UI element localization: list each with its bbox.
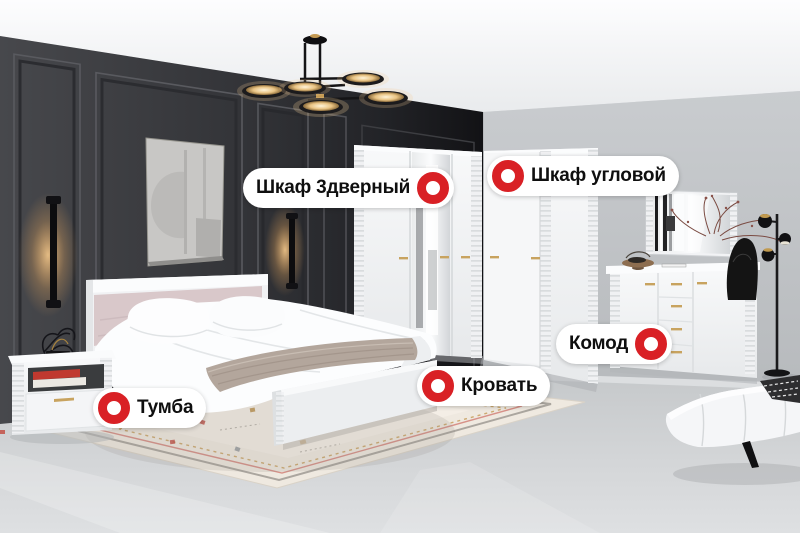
hotspot-wardrobe-3door[interactable]: Шкаф 3дверный — [243, 168, 454, 208]
hotspot-ring-icon[interactable] — [98, 392, 130, 424]
wall-sconce-right — [265, 204, 305, 296]
hotspot-bed[interactable]: Кровать — [417, 366, 550, 406]
wall-art — [146, 138, 224, 266]
hotspot-nightstand[interactable]: Тумба — [93, 388, 206, 428]
hotspot-label: Шкаф угловой — [531, 165, 666, 187]
hotspot-dresser[interactable]: Комод — [556, 324, 672, 364]
hotspot-ring-icon[interactable] — [492, 160, 524, 192]
hotspot-ring-icon[interactable] — [422, 370, 454, 402]
hotspot-label: Комод — [569, 333, 628, 355]
hotspot-label: Кровать — [461, 375, 537, 397]
hotspot-label: Тумба — [137, 397, 193, 419]
hotspot-ring-icon[interactable] — [635, 328, 667, 360]
wall-sconce-left — [18, 193, 78, 317]
hotspot-ring-icon[interactable] — [417, 172, 449, 204]
dresser-mirror — [646, 190, 737, 257]
hotspot-wardrobe-corner[interactable]: Шкаф угловой — [487, 156, 679, 196]
room-scene — [0, 0, 800, 533]
hotspot-label: Шкаф 3дверный — [256, 177, 410, 199]
dresser-decor-books — [662, 264, 686, 267]
bedroom-furniture-hotspot-image: Шкаф 3дверный Шкаф угловой Комод Кровать… — [0, 0, 800, 533]
